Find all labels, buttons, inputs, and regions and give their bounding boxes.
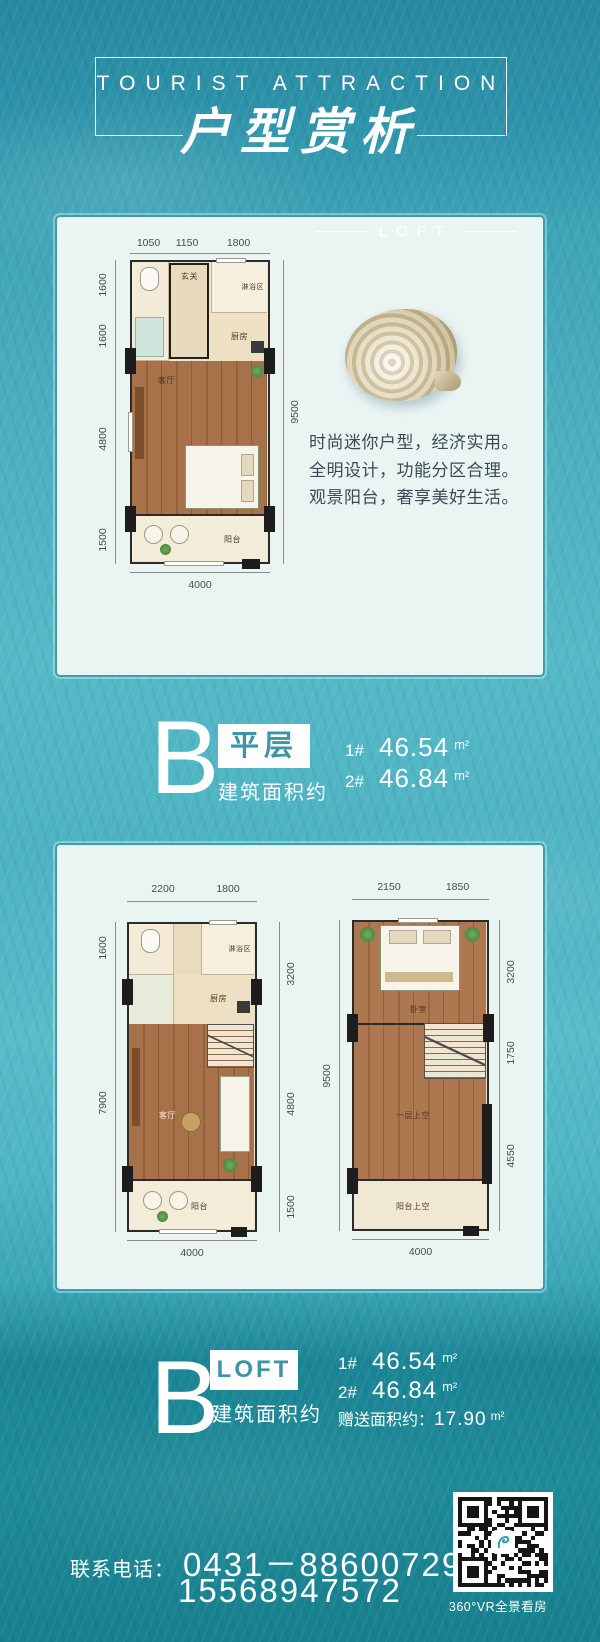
loft-tag-line-right [462, 231, 517, 232]
area-values: 1# 46.54 m² 2# 46.84 m² 赠送面积约： 17.90 m² [338, 1348, 505, 1431]
toilet-fixture [140, 267, 159, 291]
area-unit: m² [454, 737, 469, 752]
bed [185, 445, 259, 509]
room-label: 淋浴区 [229, 944, 252, 954]
dim-line [352, 899, 489, 900]
flat-badge: 平层 [218, 724, 310, 768]
dim-line [115, 922, 116, 1232]
wall-pillar [251, 979, 262, 1005]
bonus-label: 赠送面积约： [338, 1406, 434, 1430]
dim-label: 1850 [426, 881, 489, 893]
dim-label: 1800 [199, 883, 257, 895]
wall-pillar [264, 506, 275, 532]
dim-line [339, 920, 340, 1231]
dim-label: 1600 [97, 273, 109, 296]
window [164, 561, 224, 566]
description-line: 观景阳台，奢享美好生活。 [309, 484, 569, 512]
dim-label: 4000 [127, 1247, 257, 1259]
wall-pillar [125, 506, 136, 532]
room-kitchen: 厨房 [174, 975, 254, 1024]
loft-tag-label: LOFT [379, 223, 453, 240]
wall-pillar [231, 1227, 247, 1237]
area-label: 建筑面积约 [218, 776, 328, 805]
description-line: 时尚迷你户型，经济实用。 [309, 429, 569, 457]
plant [223, 1158, 237, 1172]
area-value: 46.84 [379, 763, 449, 794]
area-unit: m² [442, 1350, 457, 1365]
room-label: 客厅 [159, 1110, 176, 1121]
dim-label: 1500 [97, 528, 109, 551]
sofa [220, 1076, 250, 1152]
loft-tag-line-left [315, 231, 370, 232]
dim-label: 1750 [505, 1041, 517, 1064]
wall-pillar [482, 1104, 492, 1184]
window [216, 258, 246, 263]
room-balcony: 阳台 [129, 1179, 254, 1229]
window [398, 918, 438, 923]
unit-number: 1# [338, 1354, 372, 1374]
room-balcony-void: 阳台上空 [354, 1179, 486, 1228]
window [209, 920, 237, 925]
plant [157, 1211, 168, 1222]
floor-plan-flat: 玄关 淋浴区 厨房 客厅 阳台 [130, 260, 270, 564]
dim-label: 3200 [505, 960, 517, 983]
unit-number: 2# [338, 1383, 372, 1403]
shower-glass [135, 317, 164, 357]
dim-label: 4800 [97, 427, 109, 450]
plant [360, 927, 375, 942]
balcony-chair [144, 525, 163, 544]
bonus-area-row: 赠送面积约： 17.90 m² [338, 1406, 505, 1431]
description: 时尚迷你户型，经济实用。 全明设计，功能分区合理。 观景阳台，奢享美好生活。 [309, 429, 569, 512]
area-value: 46.84 [372, 1377, 437, 1405]
room-living: 客厅 [132, 361, 267, 514]
unit-letter: B [150, 712, 219, 804]
qr-code [453, 1492, 553, 1592]
wall-pillar [242, 559, 260, 569]
shell-image [345, 309, 457, 401]
wall-pillar [347, 1168, 358, 1194]
interior-wall [354, 1023, 424, 1025]
unit-number: 2# [345, 772, 379, 792]
wall-pillar [122, 979, 133, 1005]
unit-letter: B [150, 1352, 219, 1444]
dim-label: 2200 [127, 883, 199, 895]
area-unit: m² [454, 768, 469, 783]
window [128, 412, 133, 452]
area-row: 2# 46.84 m² [338, 1377, 505, 1406]
dim-label: 1500 [285, 1195, 297, 1218]
dim-line [127, 1240, 257, 1241]
wall-pillar [125, 348, 136, 374]
tv-cabinet [132, 1048, 140, 1126]
dim-line [499, 920, 500, 1231]
room-label: 厨房 [231, 331, 248, 342]
dim-label: 1800 [207, 237, 270, 249]
bonus-value: 17.90 [434, 1409, 487, 1431]
area-value: 46.54 [379, 732, 449, 763]
room-entry: 玄关 [169, 263, 209, 359]
balcony-chair [143, 1191, 162, 1210]
bed-pillow [389, 930, 417, 944]
dim-label: 4000 [352, 1246, 489, 1258]
dim-label: 9500 [289, 400, 301, 423]
room-loft-floor: 卧室 一层上空 [354, 922, 486, 1179]
tv-cabinet [135, 387, 144, 459]
dim-label: 1600 [97, 324, 109, 347]
wall-pillar [463, 1226, 479, 1236]
area-values: 1# 46.54 m² 2# 46.84 m² [345, 732, 469, 794]
round-table [181, 1112, 201, 1132]
dim-label: 2150 [352, 881, 426, 893]
room-shower-area: 淋浴区 [201, 924, 254, 975]
floor-plan-loft-level1: 淋浴区 厨房 客厅 阳台 [127, 922, 257, 1232]
room-label: 淋浴区 [242, 282, 265, 292]
area-unit: m² [442, 1379, 457, 1394]
card-flat: LOFT 1050 1150 1800 1600 1600 4800 1500 … [55, 215, 545, 677]
stove [237, 1001, 250, 1013]
loft-tag: LOFT [315, 223, 517, 240]
dim-line [130, 572, 270, 573]
qr-caption: 360°VR全景看房 [441, 1596, 555, 1615]
bed-pillow [241, 454, 254, 476]
room-label: 客厅 [158, 375, 175, 386]
toilet-fixture [141, 929, 160, 953]
wall-pillar [264, 348, 275, 374]
room-label: 玄关 [181, 271, 198, 282]
plant [160, 544, 171, 555]
room-shower-area: 淋浴区 [211, 262, 267, 313]
room-label: 一层上空 [396, 1110, 430, 1121]
room-label: 阳台上空 [396, 1201, 430, 1212]
dim-line [352, 1239, 489, 1240]
wall-pillar [483, 1014, 494, 1042]
phone-label: 联系电话： [70, 1553, 175, 1582]
stairs [424, 1023, 486, 1079]
room-label: 卧室 [410, 1004, 427, 1015]
dim-label: 9500 [321, 1064, 333, 1087]
qr-center-logo [491, 1530, 515, 1554]
qr-module [544, 1583, 548, 1587]
wall-pillar [347, 1014, 358, 1042]
wall-pillar [122, 1166, 133, 1192]
dim-label: 1150 [167, 237, 207, 249]
room-label: 厨房 [210, 993, 227, 1004]
plant [465, 927, 480, 942]
area-row: 1# 46.54 m² [345, 732, 469, 763]
area-label: 建筑面积约 [212, 1398, 322, 1427]
area-row: 1# 46.54 m² [338, 1348, 505, 1377]
unit-number: 1# [345, 741, 379, 761]
dim-line [130, 253, 270, 254]
wall-pillar [251, 1166, 262, 1192]
dim-label: 1050 [130, 237, 167, 249]
description-line: 全明设计，功能分区合理。 [309, 457, 569, 485]
room-kitchen: 厨房 [211, 313, 267, 361]
balcony-chair [169, 1191, 188, 1210]
dim-label: 1600 [97, 936, 109, 959]
bed-pillow [423, 930, 451, 944]
dim-label: 4550 [505, 1144, 517, 1167]
room-label: 阳台 [191, 1201, 208, 1212]
stove [251, 341, 264, 353]
room-living: 客厅 [129, 1024, 254, 1179]
card-loft: 2200 1800 1600 7900 3200 4800 1500 4000 … [55, 843, 545, 1291]
plan3-dims-top: 2150 1850 [352, 881, 489, 893]
bed-pillow [241, 480, 254, 502]
poster: TOURIST ATTRACTION 户型赏析 LOFT 1050 1150 1… [0, 0, 600, 1642]
dim-label: 3200 [285, 962, 297, 985]
room-closet [129, 975, 174, 1024]
plant [251, 365, 263, 377]
page-title: 户型赏析 [0, 92, 600, 164]
dim-label: 4800 [285, 1092, 297, 1115]
area-row: 2# 46.84 m² [345, 763, 469, 794]
dim-line [115, 260, 116, 564]
bed-blanket [385, 972, 453, 982]
bonus-unit: m² [491, 1409, 505, 1423]
phone-number-secondary: 15568947572 [178, 1572, 402, 1610]
plan2-dims-top: 2200 1800 [127, 883, 257, 895]
dim-line [279, 922, 280, 1232]
dim-label: 7900 [97, 1091, 109, 1114]
window [159, 1229, 217, 1234]
loft-badge: LOFT [210, 1350, 298, 1390]
room-balcony: 阳台 [132, 514, 267, 561]
floor-plan-loft-level2: 卧室 一层上空 阳台上空 [352, 920, 489, 1231]
room-label: 阳台 [224, 534, 241, 545]
dim-line [127, 901, 257, 902]
area-value: 46.54 [372, 1348, 437, 1376]
dim-label: 4000 [130, 579, 270, 591]
bed [380, 925, 460, 991]
stairs [207, 1024, 254, 1068]
room-bathroom [129, 924, 174, 975]
plan1-dims-top: 1050 1150 1800 [130, 237, 270, 249]
seahorse-logo-icon [494, 1533, 512, 1551]
dim-line [283, 260, 284, 564]
room-bathroom [132, 262, 169, 361]
balcony-chair [170, 525, 189, 544]
